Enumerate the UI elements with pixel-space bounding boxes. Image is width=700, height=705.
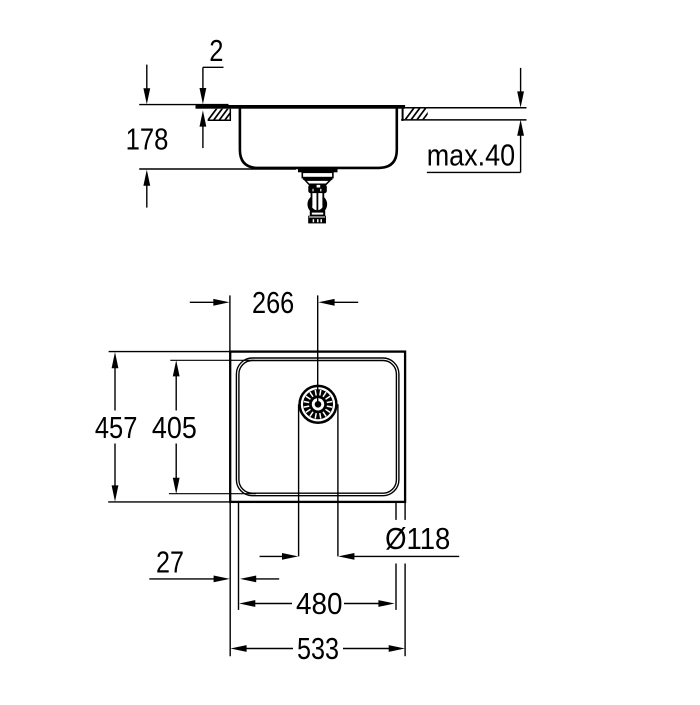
svg-text:Ø118: Ø118 [385, 521, 450, 556]
svg-text:2: 2 [209, 33, 223, 68]
svg-text:405: 405 [152, 410, 197, 445]
svg-text:27: 27 [156, 545, 184, 580]
svg-text:max.40: max.40 [427, 138, 516, 173]
svg-text:480: 480 [296, 586, 343, 621]
svg-text:457: 457 [95, 410, 137, 445]
svg-text:266: 266 [252, 285, 294, 320]
svg-text:533: 533 [297, 631, 339, 666]
svg-text:178: 178 [126, 122, 169, 157]
